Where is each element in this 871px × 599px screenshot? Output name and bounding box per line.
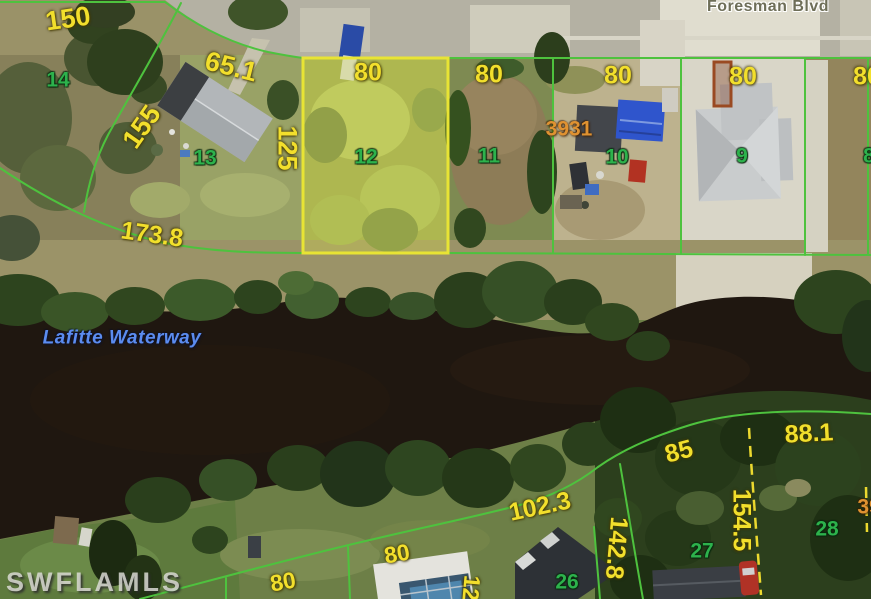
lot9-marker-object xyxy=(714,62,731,106)
red-car xyxy=(739,560,760,595)
lot27-house xyxy=(652,566,745,599)
yard-item xyxy=(151,144,163,156)
subject-parcel-outline xyxy=(303,58,448,253)
dock xyxy=(53,516,79,545)
right-edge-dashed-boundary xyxy=(866,487,867,532)
aerial-photo xyxy=(0,0,871,599)
parked-car xyxy=(248,536,261,558)
aerial-parcel-map: Foresman Blvd 150 14 65.1 155 125 13 173… xyxy=(0,0,871,599)
yard-item xyxy=(180,150,190,157)
yard-item xyxy=(183,143,189,149)
yard-item xyxy=(169,129,175,135)
